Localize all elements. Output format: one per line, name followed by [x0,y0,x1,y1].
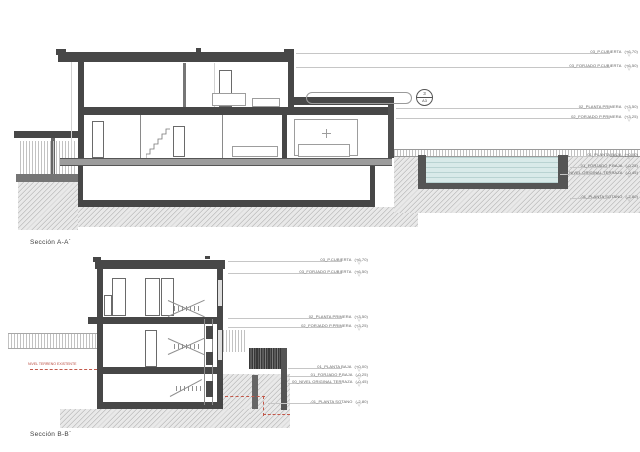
level-marker: 01_PLANTA BAJA(+0,00) ▽ [0,152,638,161]
window-slot-right-wall [218,280,222,306]
fence-hatch-right [223,330,247,352]
door [104,295,112,316]
level-symbol-icon: ▽ [627,174,631,179]
fence-hatch-left [8,333,97,349]
level-marker: 02_FORJADO P.PRIMERA(+3,25) ▽ [0,114,638,123]
level-symbol-icon: ▽ [627,118,631,123]
level-label: 03_FORJADO P.CUBIERTA [569,63,621,68]
section-a-title: Sección A-A´ [30,239,71,246]
existing-terrain-dash [225,396,265,397]
level-label: 02_PLANTA PRIMERA [309,314,352,319]
level-marker: 03_FORJADO P.CUBIERTA(+6,50) ▽ [0,63,638,72]
terrain-hatch-under-house [60,409,250,428]
level-label: 00_NIVEL ORIGINAL TERRAZA [292,379,352,384]
section-b-title: Sección B-B´ [30,431,72,438]
level-symbol-icon: ▽ [357,403,361,408]
door [145,278,160,316]
level-label: 03_P.CUBIERTA [320,257,351,262]
level-marker: 02_PLANTA PRIMERA(+3,50) ▽ [0,314,368,323]
level-marker: -01_PLANTA SOTANO(-2,80) ▽ [0,194,638,203]
existing-terrain-dash [263,414,290,415]
level-label: 03_P.CUBIERTA [590,49,621,54]
level-label: -01_PLANTA SOTANO [310,399,352,404]
level-marker: 02_PLANTA PRIMERA(+3,50) ▽ [0,104,638,113]
level-symbol-icon: ▽ [357,327,361,332]
level-label: -01_PLANTA SOTANO [580,194,622,199]
level-label: 03_FORJADO P.CUBIERTA [299,269,351,274]
level-symbol-icon: ▽ [357,383,361,388]
level-label: 02_FORJADO P.PRIMERA [571,114,621,119]
level-marker: 03_P.CUBIERTA(+6,70) ▽ [0,49,638,58]
level-label: 00_NIVEL ORIGINAL TERRAZA [562,170,622,175]
window-slot-right-wall [218,330,222,360]
level-marker: 00_NIVEL ORIGINAL TERRAZA(-0,45) ▽ [0,379,368,388]
canopy-roof [14,131,78,138]
door [145,330,157,367]
level-symbol-icon: ▽ [627,156,631,161]
glass-pane-cross-icon [326,129,327,138]
door [112,278,126,316]
door [161,278,174,316]
level-label: 01_PLANTA BAJA [317,364,351,369]
level-marker: 03_P.CUBIERTA(+6,70) ▽ [0,257,368,266]
terrain-hatch-left [18,182,78,230]
level-label: 02_PLANTA PRIMERA [579,104,622,109]
level-label: 01_FORJADO P.BAJA [581,163,623,168]
callout-number: 3 [417,90,432,98]
level-symbol-icon: ▽ [627,67,631,72]
level-symbol-icon: ▽ [627,108,631,113]
level-label: 01_PLANTA BAJA [587,152,621,157]
level-label: 02_FORJADO P.PRIMERA [301,323,351,328]
level-marker: -01_PLANTA SOTANO(-2,80) ▽ [0,399,368,408]
level-marker: 03_FORJADO P.CUBIERTA(+6,50) ▽ [0,269,368,278]
detail-callout-lasso [306,92,412,104]
level-symbol-icon: ▽ [627,198,631,203]
pool-floor [418,183,568,189]
level-marker: 02_FORJADO P.PRIMERA(+3,25) ▽ [0,323,368,332]
level-symbol-icon: ▽ [627,53,631,58]
architectural-sections-sheet: 3 A3 03_P.CUBIERTA(+6,70) ▽ 03_FORJADO P… [0,0,640,452]
level-label: 01_FORJADO P.BAJA [311,372,353,377]
level-symbol-icon: ▽ [357,261,361,266]
level-marker: 00_NIVEL ORIGINAL TERRAZA(-0,45) ▽ [0,170,638,179]
level-symbol-icon: ▽ [357,273,361,278]
terrain-hatch-under-house [78,207,418,227]
